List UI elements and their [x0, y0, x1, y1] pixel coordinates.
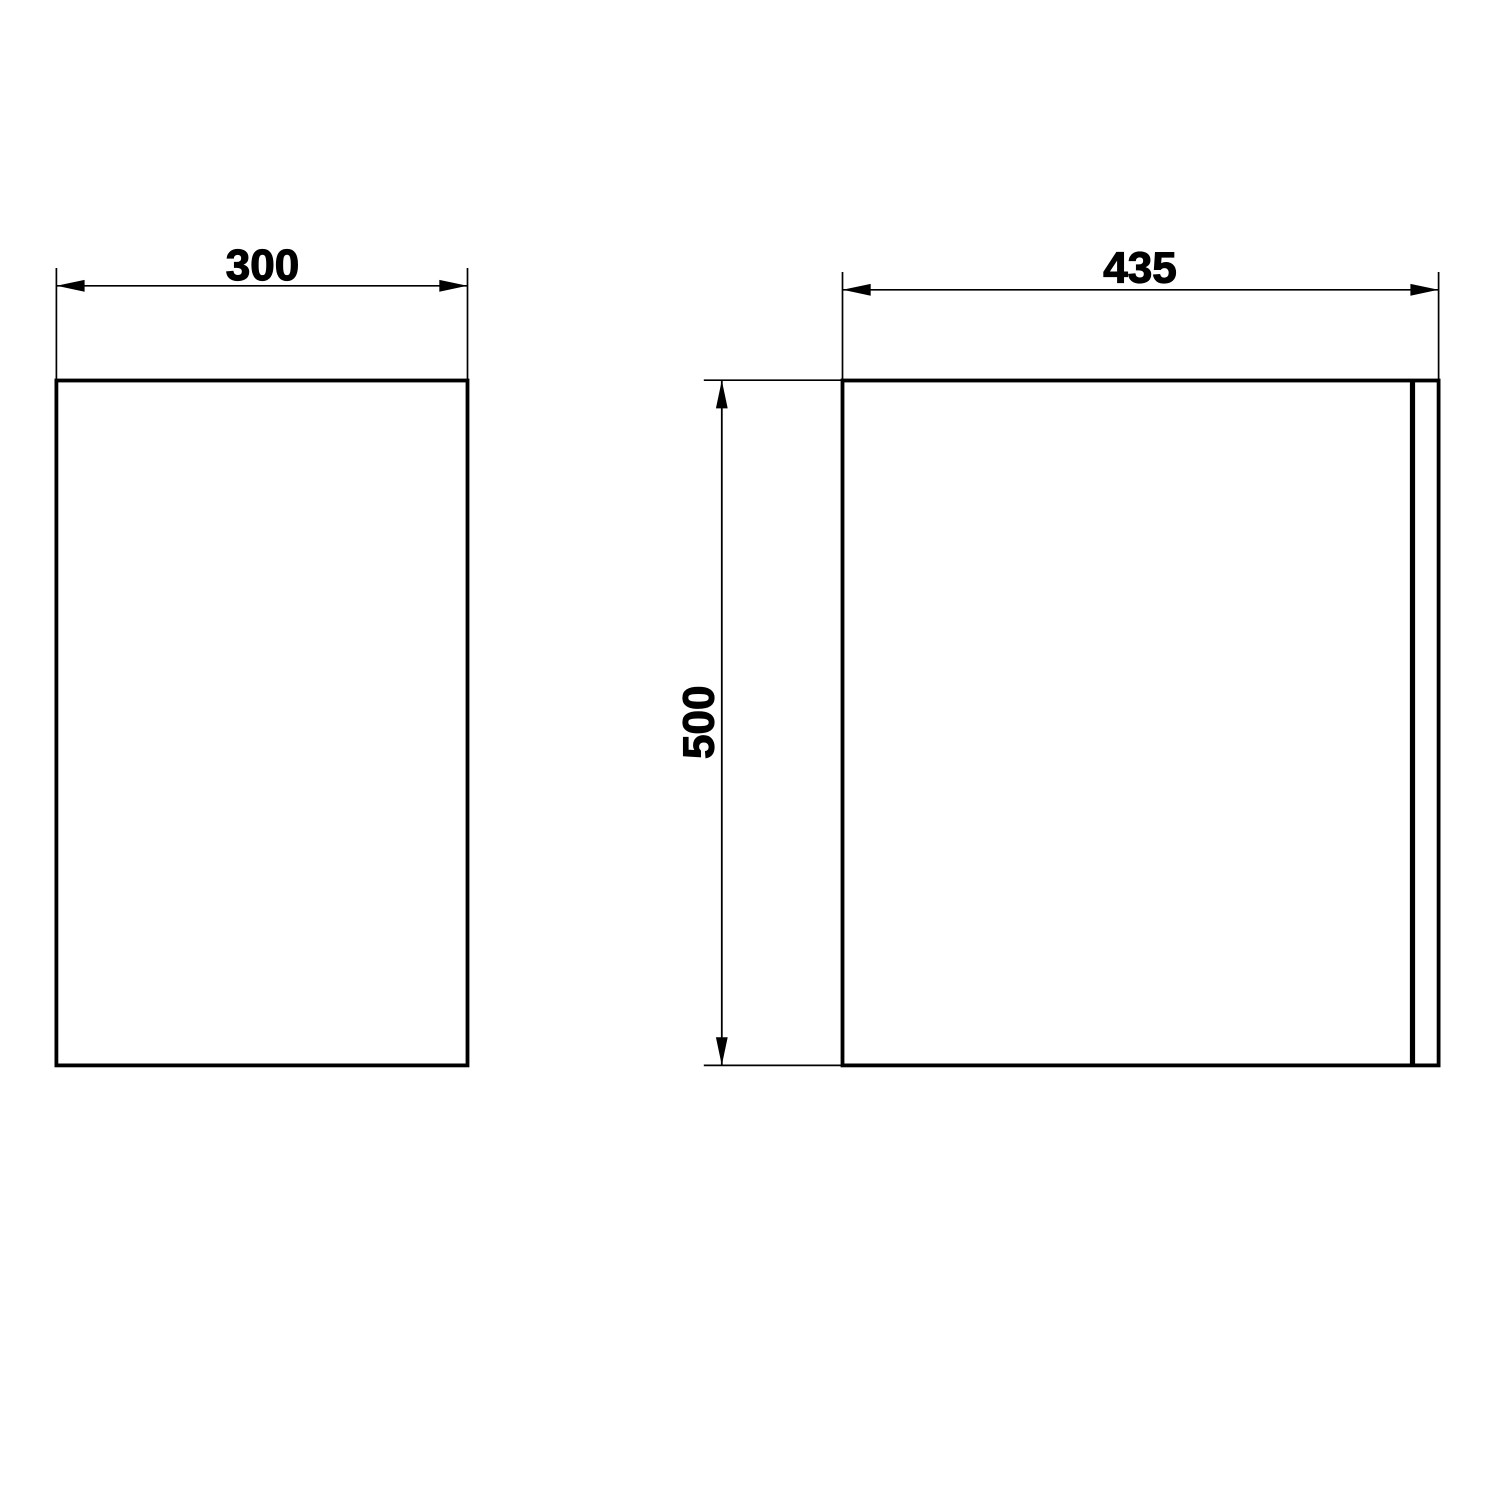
svg-text:500: 500 [674, 686, 723, 759]
svg-text:300: 300 [226, 241, 299, 290]
svg-text:435: 435 [1103, 243, 1176, 292]
